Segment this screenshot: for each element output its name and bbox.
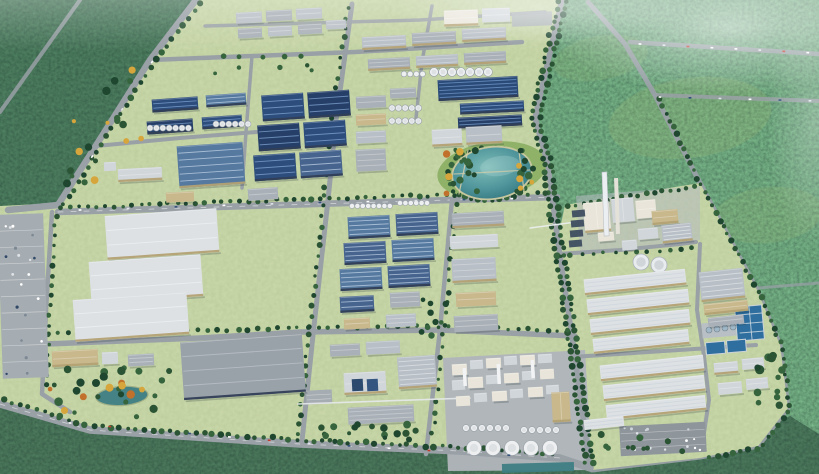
silo-tank-top	[221, 122, 224, 125]
tree	[563, 321, 569, 327]
tree	[433, 421, 437, 425]
car	[175, 206, 178, 208]
silo-tank-top	[470, 444, 478, 452]
silo-tank-top	[530, 428, 534, 432]
tree	[382, 194, 386, 198]
tree	[588, 448, 593, 453]
silo-tank	[349, 203, 354, 208]
tree	[100, 424, 105, 429]
tree	[394, 430, 401, 437]
tree	[580, 384, 586, 390]
tree	[754, 446, 760, 452]
silo-tank-top	[554, 428, 558, 432]
tree	[54, 397, 63, 406]
tree	[568, 356, 574, 362]
tree	[516, 163, 522, 169]
car	[507, 454, 510, 456]
tree	[671, 124, 677, 130]
tree	[569, 302, 573, 306]
tree	[52, 244, 55, 247]
tree	[532, 101, 537, 106]
tree	[116, 425, 122, 431]
tree	[759, 294, 765, 300]
car	[749, 98, 752, 100]
silo-tank-top	[403, 119, 407, 123]
tree	[224, 328, 229, 333]
tree	[522, 158, 528, 164]
tree	[558, 233, 563, 238]
tree	[391, 194, 395, 198]
tree	[550, 62, 555, 67]
tree	[413, 428, 419, 434]
tree	[674, 131, 680, 137]
tree	[321, 185, 327, 191]
tree	[560, 301, 565, 306]
tree	[575, 406, 580, 411]
tree	[738, 449, 743, 454]
tree	[345, 196, 350, 201]
tree	[298, 54, 303, 59]
tree	[548, 74, 553, 79]
tree	[558, 274, 563, 279]
tree	[80, 393, 87, 400]
tree	[133, 427, 137, 431]
silo-tank-top	[148, 126, 151, 129]
tree	[665, 438, 671, 444]
silo-tank	[371, 203, 376, 208]
tree	[296, 421, 301, 426]
tree	[364, 195, 368, 199]
car	[222, 205, 225, 207]
tree	[630, 427, 633, 430]
tree	[555, 204, 562, 211]
factory-hall-navy	[261, 92, 306, 122]
tree	[761, 443, 765, 447]
tree	[722, 224, 726, 228]
silo-tank-top	[450, 70, 455, 75]
tree	[575, 349, 581, 355]
factory-hall-slate	[339, 267, 384, 292]
tree	[17, 254, 20, 257]
tree	[140, 203, 143, 206]
workshop-shed	[714, 361, 740, 376]
tree	[687, 428, 689, 430]
tree	[536, 81, 540, 85]
factory-hall-navy	[257, 122, 302, 152]
tree	[723, 452, 729, 458]
shadow	[454, 376, 469, 377]
tree	[9, 226, 12, 229]
tree	[86, 204, 90, 208]
tree	[707, 455, 711, 459]
tree	[543, 190, 549, 196]
tree	[18, 402, 23, 407]
tree	[562, 260, 568, 266]
tree	[542, 175, 548, 181]
tree	[73, 387, 81, 395]
tree	[451, 189, 455, 193]
shadow	[530, 398, 545, 399]
tree	[572, 378, 576, 382]
silo-tank	[360, 203, 365, 208]
tree	[552, 246, 558, 252]
tree	[518, 148, 524, 154]
tree	[536, 143, 540, 147]
plant-pond	[502, 462, 574, 473]
tree	[52, 383, 57, 388]
tree	[283, 197, 288, 202]
tree	[567, 287, 572, 292]
tree	[550, 237, 557, 244]
tree	[54, 214, 60, 220]
car	[270, 203, 273, 205]
gatehouse	[104, 162, 116, 172]
tree	[571, 372, 575, 376]
tree	[567, 252, 573, 258]
car	[689, 97, 692, 99]
tree	[692, 168, 696, 172]
tree	[587, 441, 594, 448]
tree	[542, 169, 548, 175]
tree	[26, 372, 29, 375]
indoor-basin	[367, 379, 379, 392]
tree	[214, 327, 220, 333]
tree	[135, 368, 142, 375]
tree	[157, 201, 162, 206]
tree	[677, 188, 681, 192]
silo-tank-top	[234, 122, 237, 125]
process-unit	[468, 377, 485, 390]
tree	[328, 438, 333, 443]
tree	[25, 404, 30, 409]
silo-tank-top	[417, 106, 421, 110]
tree	[560, 295, 567, 302]
tree	[380, 424, 388, 432]
tree	[56, 331, 60, 335]
tree	[687, 160, 693, 166]
tree	[244, 327, 250, 333]
tree	[590, 460, 597, 467]
silo-tank	[407, 71, 413, 77]
tree	[149, 65, 155, 71]
factory-hall-slate	[177, 142, 247, 190]
tree	[52, 255, 56, 259]
tree	[784, 388, 788, 392]
tree	[564, 266, 569, 271]
tree	[319, 214, 323, 218]
tree	[552, 232, 556, 236]
tree	[581, 252, 585, 256]
tree	[437, 355, 442, 360]
tree	[563, 314, 569, 320]
tree	[376, 325, 381, 330]
silo-tank-top	[187, 126, 190, 129]
tree	[24, 314, 27, 317]
tree	[757, 290, 761, 294]
tree	[419, 329, 425, 335]
tree	[548, 155, 554, 161]
tree	[413, 443, 418, 448]
tree	[27, 273, 30, 276]
car	[127, 208, 130, 210]
tree	[606, 445, 611, 450]
tree	[677, 140, 683, 146]
tree	[52, 223, 56, 227]
tree	[715, 453, 721, 459]
tree	[118, 382, 126, 390]
tree	[439, 320, 444, 325]
tree	[533, 129, 537, 133]
tree	[308, 196, 314, 202]
tree	[296, 432, 300, 436]
tree	[769, 319, 773, 323]
tree	[754, 365, 760, 371]
tree	[644, 190, 650, 196]
shadow	[506, 384, 521, 385]
car	[388, 447, 391, 449]
tree	[159, 377, 165, 383]
tree	[228, 199, 232, 203]
tree	[574, 204, 577, 207]
tree	[47, 343, 51, 347]
tree	[318, 235, 323, 240]
tree	[554, 259, 559, 264]
factory-hall-slate	[343, 241, 388, 266]
tree	[779, 339, 784, 344]
tree	[552, 190, 558, 196]
silo-tank-top	[468, 70, 473, 75]
car	[510, 198, 513, 200]
tree	[737, 253, 741, 257]
tree	[301, 197, 306, 202]
tree	[551, 170, 555, 174]
tree	[371, 441, 377, 447]
tree	[543, 143, 549, 149]
car	[366, 201, 369, 203]
car	[69, 422, 72, 424]
tree	[561, 245, 566, 250]
tree	[320, 438, 324, 442]
tree	[539, 108, 544, 113]
tree	[580, 372, 584, 376]
tree	[614, 251, 618, 255]
tree	[572, 392, 577, 397]
tree	[202, 200, 207, 205]
tree	[635, 194, 640, 199]
car	[108, 426, 111, 428]
tree	[464, 158, 472, 166]
silo-tank-top	[397, 119, 401, 123]
tree	[118, 391, 124, 397]
tree	[679, 448, 685, 454]
tree	[61, 407, 68, 414]
treatment-basin	[727, 339, 747, 353]
solar-carport	[572, 209, 586, 217]
tree	[543, 90, 548, 95]
tree	[459, 160, 463, 164]
tree	[447, 267, 451, 271]
tree	[589, 453, 595, 459]
tree	[551, 184, 558, 191]
tree	[304, 439, 308, 443]
tree	[636, 432, 639, 435]
tree	[565, 281, 571, 287]
tree	[474, 188, 480, 194]
aerial-render-canvas	[0, 0, 819, 474]
tree	[49, 293, 54, 298]
tree	[311, 293, 316, 298]
tree	[202, 430, 208, 436]
process-unit	[474, 393, 487, 403]
silo-tank-top	[155, 126, 158, 129]
tree	[579, 440, 585, 446]
tree	[345, 441, 349, 445]
tree	[81, 172, 87, 178]
shadow	[522, 366, 537, 367]
factory-building-blue	[340, 295, 376, 314]
tree	[279, 436, 283, 440]
tree	[150, 405, 158, 413]
tree	[142, 427, 148, 433]
tree	[754, 389, 762, 397]
tree	[332, 439, 337, 444]
roof	[102, 352, 119, 365]
tree	[438, 368, 442, 372]
tree	[50, 274, 55, 279]
tree	[560, 288, 565, 293]
tree	[444, 311, 448, 315]
tree	[221, 53, 227, 59]
tree	[533, 94, 540, 101]
tree	[219, 199, 223, 203]
tree	[421, 298, 426, 303]
tree	[575, 356, 581, 362]
tree	[718, 218, 724, 224]
silo-tank	[355, 203, 360, 208]
tree	[706, 196, 711, 201]
tree	[321, 203, 325, 207]
tree	[5, 255, 8, 258]
tree	[560, 307, 566, 313]
tree	[337, 197, 341, 201]
factory-hall-navy	[303, 119, 348, 149]
tree	[581, 448, 585, 452]
tree	[213, 72, 217, 76]
tree	[122, 205, 125, 208]
tree	[745, 446, 751, 452]
tree	[567, 295, 574, 302]
tree	[678, 247, 683, 252]
tree	[772, 326, 778, 332]
tree	[782, 357, 786, 361]
solar-carport	[570, 229, 584, 237]
tree	[287, 326, 291, 330]
tree	[153, 56, 160, 63]
tree	[543, 56, 547, 60]
tree	[775, 375, 780, 380]
tree	[472, 147, 479, 154]
tree	[537, 114, 543, 120]
tree	[402, 430, 409, 437]
tree	[338, 66, 342, 70]
factory-building	[248, 187, 280, 202]
tree	[785, 410, 790, 415]
tree	[559, 240, 565, 246]
tree	[555, 219, 560, 224]
tree	[128, 95, 135, 102]
tree	[585, 412, 591, 418]
tree	[76, 379, 84, 387]
tree	[81, 422, 87, 428]
tree	[212, 199, 216, 203]
tree	[68, 205, 73, 210]
tree	[111, 77, 119, 85]
tree	[53, 234, 57, 238]
silo-tank-top	[477, 70, 482, 75]
tree	[539, 68, 546, 75]
lakeside-hall	[432, 128, 464, 148]
tree	[694, 447, 696, 449]
tree	[601, 251, 605, 255]
tree	[559, 255, 562, 258]
silo-tank	[401, 71, 407, 77]
silo-tank-top	[168, 126, 171, 129]
tree	[551, 178, 557, 184]
silo-tank-top	[546, 444, 554, 452]
tree	[425, 325, 431, 331]
tree	[630, 445, 636, 451]
tree	[282, 54, 288, 60]
tree	[568, 343, 573, 348]
tree	[747, 274, 753, 280]
tree	[37, 297, 40, 300]
process-unit	[504, 356, 517, 366]
tree	[785, 395, 790, 400]
tree	[330, 423, 337, 430]
tree	[526, 193, 530, 197]
tree	[576, 425, 582, 431]
tree	[5, 373, 7, 375]
silo-tank-top	[527, 444, 535, 452]
car	[462, 199, 465, 201]
utility-building	[366, 340, 402, 356]
tree	[744, 269, 748, 273]
tree	[582, 405, 589, 412]
tree	[540, 156, 546, 162]
tree	[132, 87, 138, 93]
silo-tank	[403, 200, 408, 205]
silo-tank-top	[441, 70, 446, 75]
tree	[644, 249, 649, 254]
tree	[571, 314, 576, 319]
tree	[313, 284, 318, 289]
factory-hall-slate	[391, 238, 436, 263]
factory-building	[356, 130, 388, 145]
tree	[252, 435, 257, 440]
tree	[540, 102, 545, 107]
tree	[237, 54, 242, 59]
tree	[244, 434, 250, 440]
tree	[767, 435, 771, 439]
tree	[542, 182, 548, 188]
tree	[381, 442, 385, 446]
factory-hall-slate	[395, 212, 440, 237]
tree	[317, 326, 321, 330]
process-unit	[540, 369, 555, 380]
silo-tank-top	[546, 428, 550, 432]
silo-tank-top	[488, 426, 492, 430]
tree	[147, 202, 151, 206]
